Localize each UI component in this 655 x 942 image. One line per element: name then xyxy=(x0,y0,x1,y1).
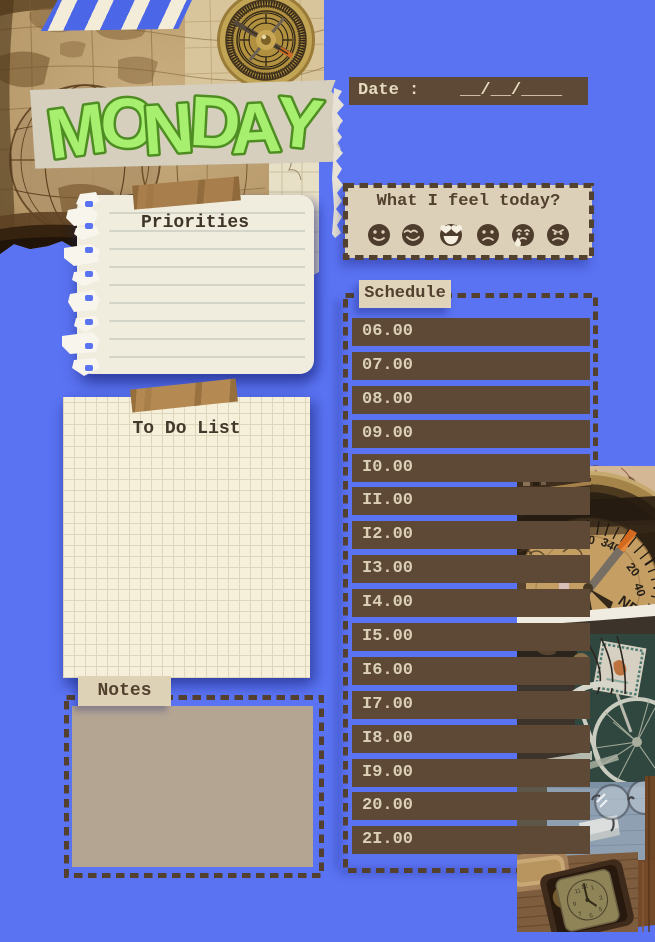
svg-text:Y: Y xyxy=(272,82,327,164)
svg-text:Priorities: Priorities xyxy=(141,213,249,233)
